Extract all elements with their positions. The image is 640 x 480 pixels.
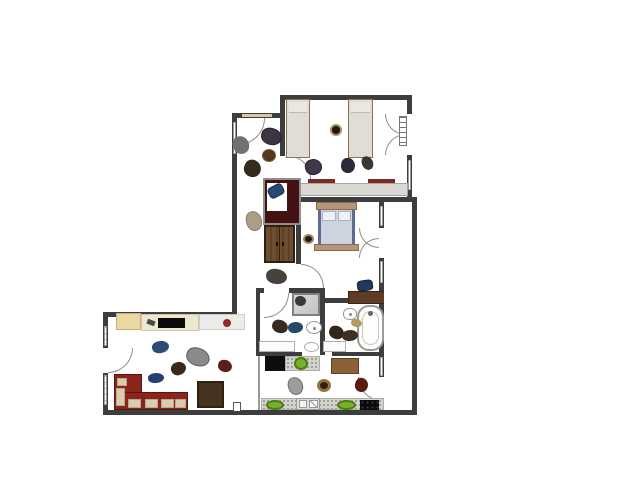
toilet-drain <box>349 313 352 316</box>
window-living-2 <box>104 375 107 405</box>
sink <box>296 398 320 410</box>
sink-basin <box>299 400 307 408</box>
bathtub-faucet <box>368 311 373 316</box>
plant <box>266 400 284 410</box>
wardrobe-divider <box>279 227 280 261</box>
toilet-drain <box>313 327 316 330</box>
clothes-pile <box>265 268 287 285</box>
sideboard-middle <box>141 314 199 331</box>
plant <box>337 400 356 410</box>
wardrobe <box>264 225 295 263</box>
wall-bedroom-right-a <box>407 95 412 114</box>
wall-bedroom-left-a <box>280 95 285 156</box>
pillow <box>322 211 336 221</box>
remote <box>146 319 155 326</box>
bedroom-desk <box>348 291 385 304</box>
wall-bath-kitchen-b <box>332 352 384 356</box>
single-bed-right <box>348 99 373 158</box>
clothes-pile <box>262 149 276 162</box>
shower-head <box>295 296 306 306</box>
basin <box>304 342 319 352</box>
door-arc-living <box>108 348 133 373</box>
clothes-pile <box>244 210 264 233</box>
door-arc-bedroom-double <box>301 264 324 288</box>
wall-kitchen-left <box>258 356 260 410</box>
coffee-table <box>197 381 224 408</box>
clothes-pile <box>241 157 264 180</box>
sofa-cushion <box>116 388 125 406</box>
double-bed <box>318 210 355 244</box>
pillow <box>351 102 370 113</box>
sofa-cushion <box>128 399 141 408</box>
red-dot-decor <box>223 319 231 327</box>
window-living-1 <box>104 326 107 346</box>
clothes-pile <box>287 321 304 334</box>
entry-door-niche <box>233 402 241 411</box>
sofa-cushion <box>117 378 127 386</box>
tv <box>158 318 185 328</box>
clothes-pile <box>151 339 170 354</box>
wall-bottom <box>103 410 417 415</box>
stove <box>265 356 285 371</box>
sideboard-right <box>199 314 245 330</box>
plant <box>294 357 308 370</box>
double-bed-headboard <box>316 202 357 210</box>
radiator <box>399 116 407 146</box>
clothes-pile <box>169 359 188 377</box>
washbasin-counter <box>259 341 295 352</box>
bathtub <box>357 305 384 351</box>
clothes-pile <box>286 375 305 396</box>
wardrobe-handle <box>282 242 284 246</box>
balcony <box>384 202 412 410</box>
toy <box>330 124 342 136</box>
pillow <box>338 211 351 221</box>
sink-drainboard <box>309 400 318 408</box>
double-bed-footboard <box>314 244 359 251</box>
pillow <box>289 102 307 113</box>
window-midbed-2 <box>380 261 383 283</box>
window-bedroom-twin <box>408 160 411 190</box>
toilet <box>306 321 322 334</box>
clothes-pile <box>148 372 165 384</box>
single-bed-left <box>286 99 310 158</box>
sofa-cushion <box>161 399 174 408</box>
clothes-pile <box>271 318 290 335</box>
sofa-cushion <box>175 399 186 408</box>
bathtub-inner <box>362 311 379 345</box>
cooktop <box>360 400 379 410</box>
sideboard-left <box>116 313 141 330</box>
sofa-cushion <box>145 399 158 408</box>
clothes-pile <box>340 157 356 174</box>
window-midbed-1 <box>380 206 383 226</box>
window-hall-top <box>242 114 272 117</box>
door-arc-bathroom <box>264 293 289 318</box>
clothes-pile <box>184 345 212 370</box>
clothes-pile <box>217 359 233 374</box>
floor-plan <box>0 0 640 480</box>
hat <box>317 379 331 392</box>
rug <box>331 358 359 374</box>
closet-door-double-lower <box>359 238 379 258</box>
long-desk <box>298 183 408 196</box>
shoe-pair <box>303 234 314 244</box>
window-kitchen <box>380 357 383 376</box>
wardrobe-handle <box>276 242 278 246</box>
wall-balcony-right <box>412 197 417 415</box>
maroon-desk <box>263 178 301 225</box>
washbasin-counter <box>323 341 346 352</box>
shower-stall <box>292 293 320 316</box>
